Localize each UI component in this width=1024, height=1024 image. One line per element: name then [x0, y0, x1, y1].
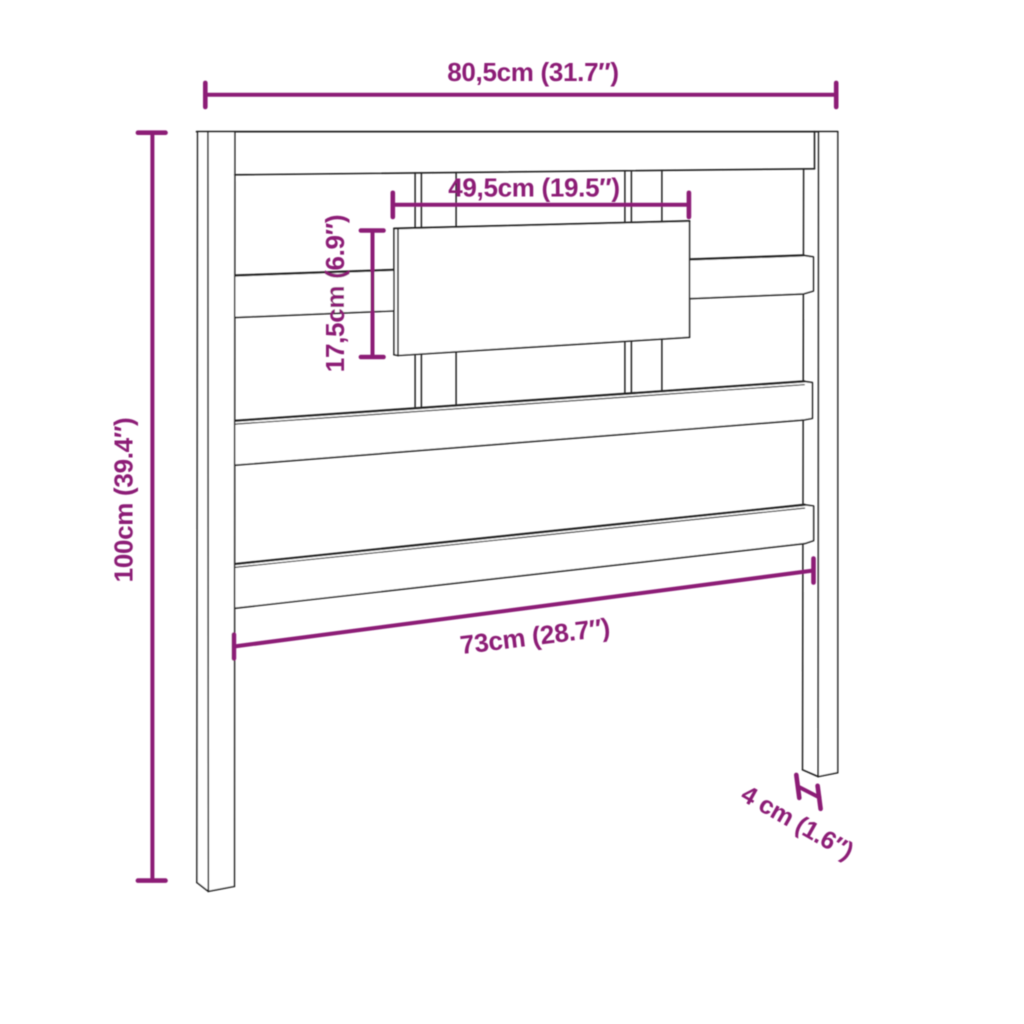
svg-text:49,5cm (19.5″): 49,5cm (19.5″): [448, 173, 620, 203]
svg-text:80,5cm (31.7″): 80,5cm (31.7″): [447, 57, 619, 87]
svg-text:17,5cm (6.9″): 17,5cm (6.9″): [320, 215, 350, 372]
svg-text:100cm (39.4″): 100cm (39.4″): [109, 418, 139, 583]
svg-text:73cm (28.7″): 73cm (28.7″): [458, 612, 611, 660]
